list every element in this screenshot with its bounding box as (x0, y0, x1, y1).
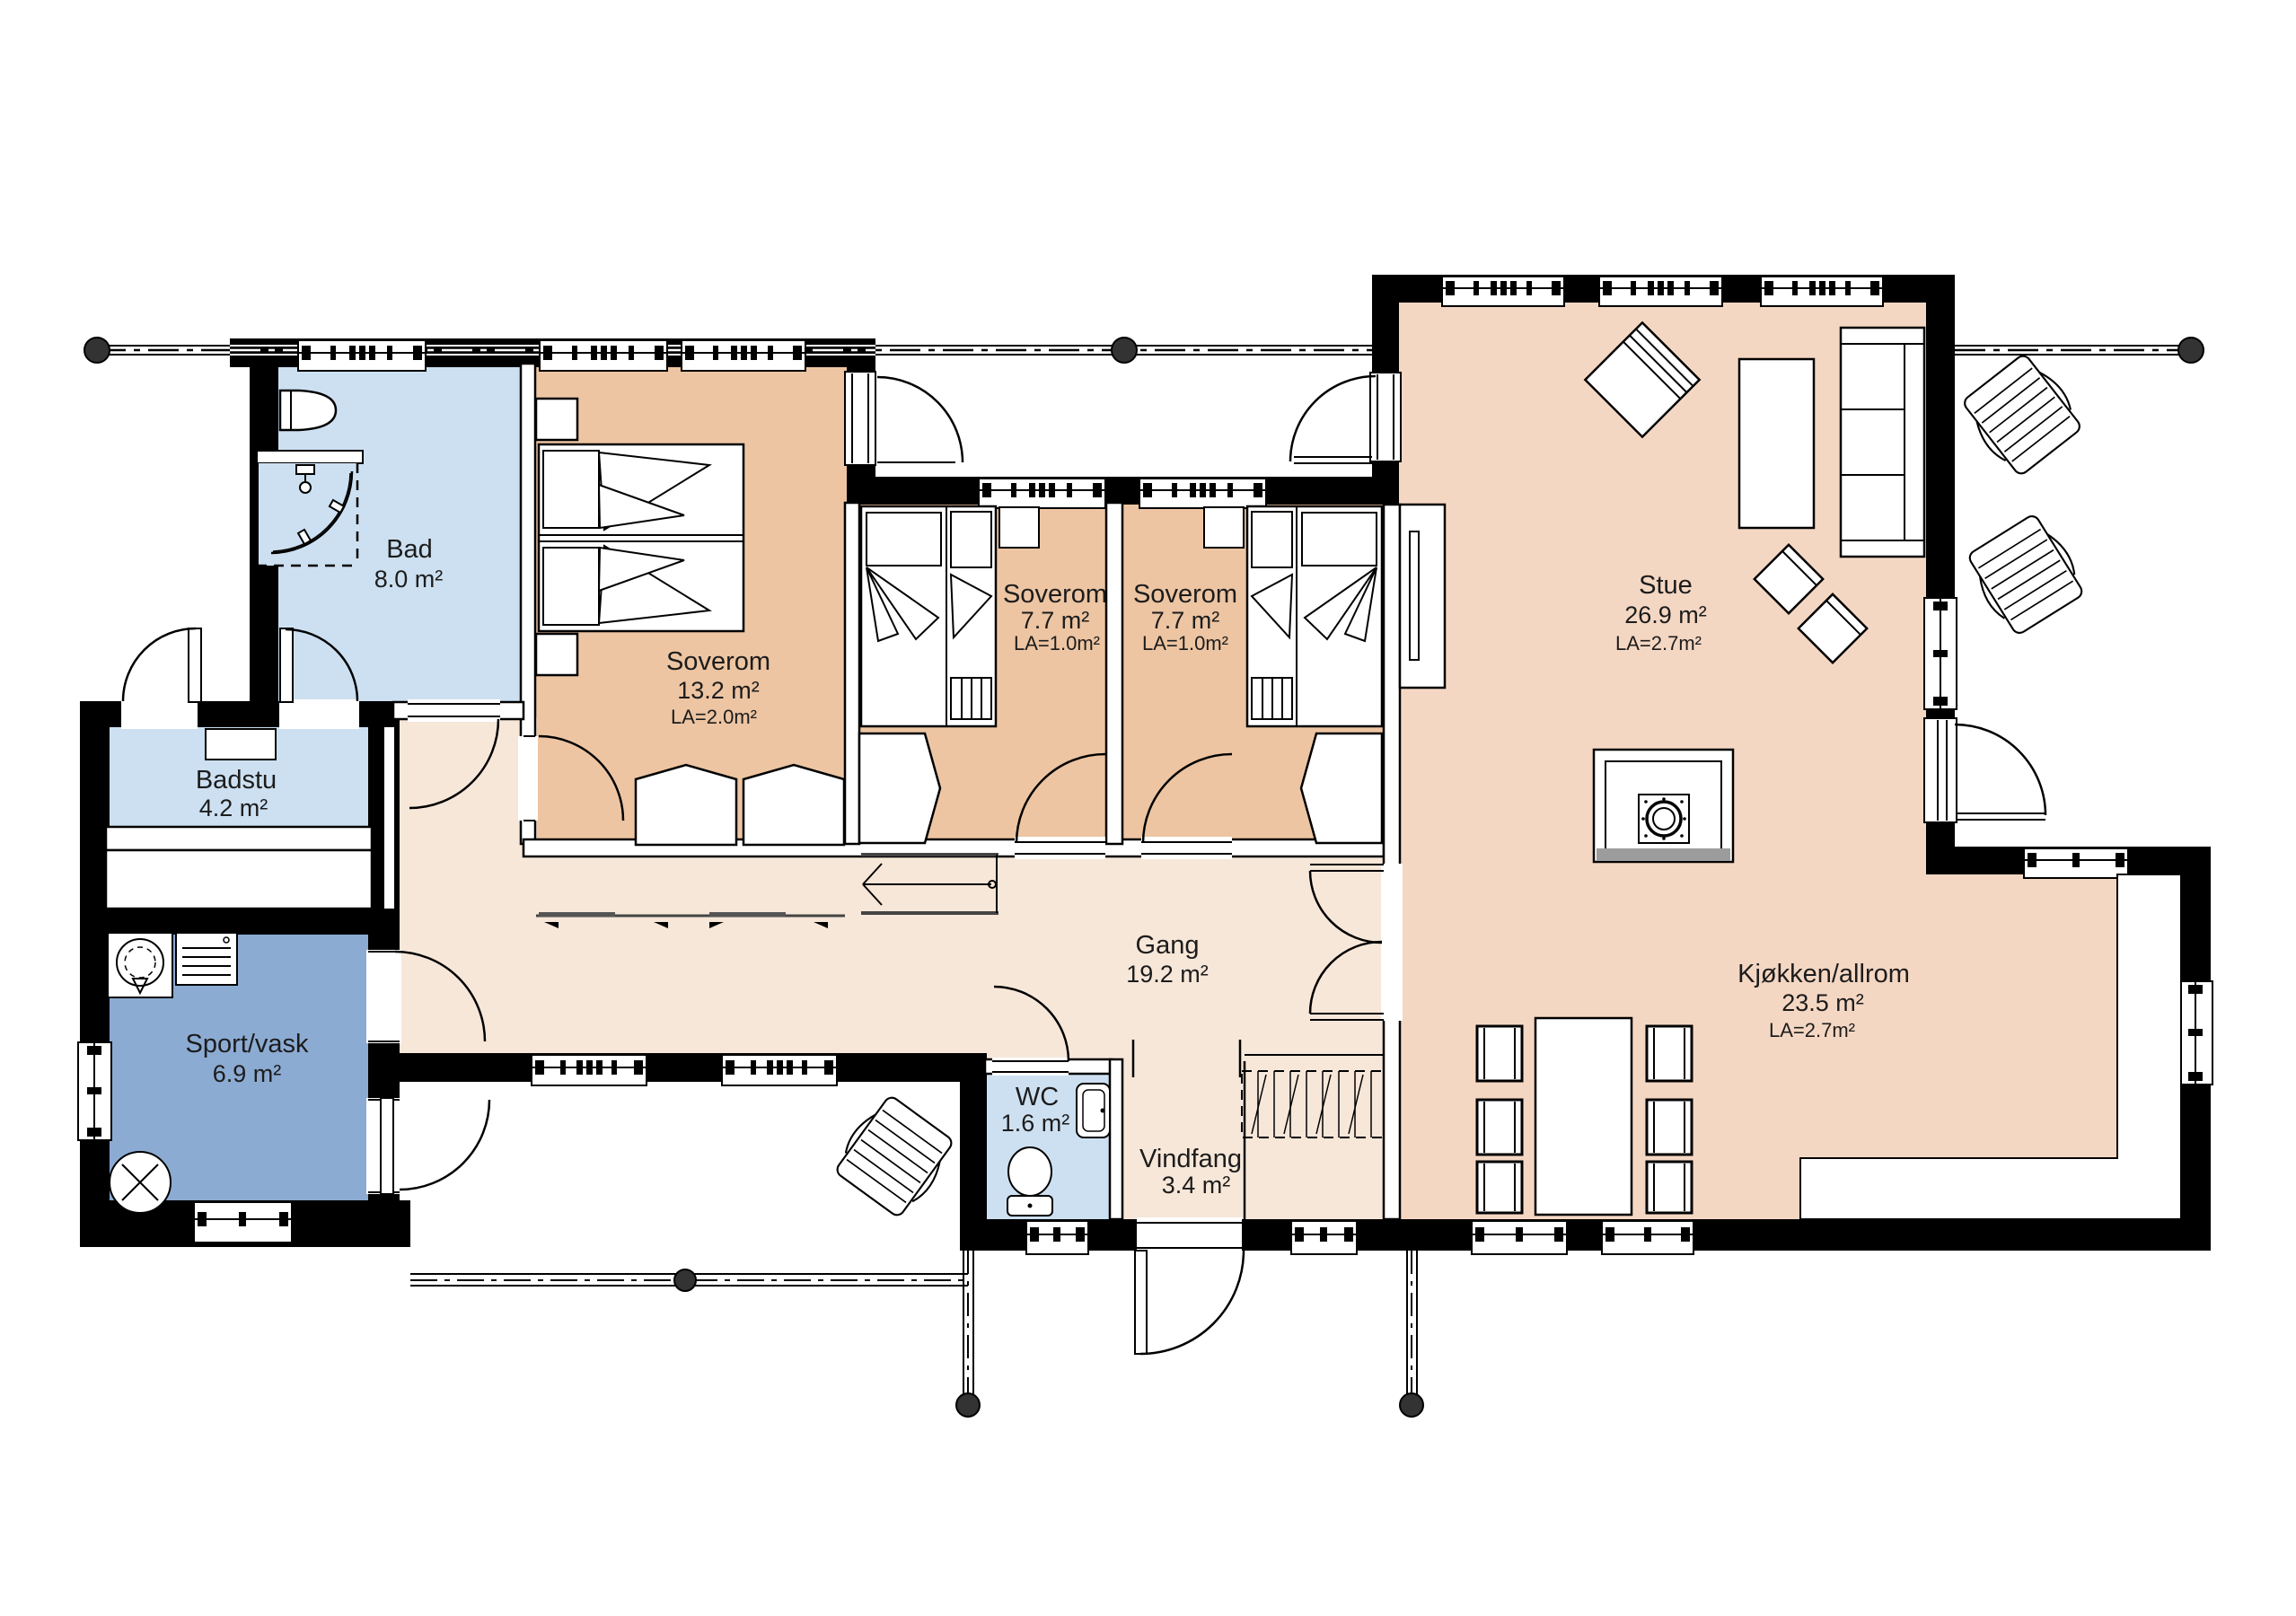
svg-text:Soverom: Soverom (666, 647, 770, 676)
svg-text:6.9 m²: 6.9 m² (213, 1060, 282, 1087)
svg-text:19.2 m²: 19.2 m² (1126, 961, 1209, 988)
svg-text:7.7 m²: 7.7 m² (1021, 607, 1090, 634)
svg-text:LA=2.7m²: LA=2.7m² (1615, 632, 1702, 654)
svg-text:Badstu: Badstu (196, 766, 277, 795)
svg-text:13.2 m²: 13.2 m² (677, 677, 760, 704)
svg-text:3.4 m²: 3.4 m² (1162, 1172, 1231, 1199)
svg-text:8.0 m²: 8.0 m² (374, 566, 444, 593)
svg-text:Vindfang: Vindfang (1139, 1145, 1242, 1173)
svg-text:Kjøkken/allrom: Kjøkken/allrom (1737, 960, 1910, 988)
svg-text:Sport/vask: Sport/vask (186, 1030, 309, 1058)
svg-text:LA=2.7m²: LA=2.7m² (1769, 1019, 1855, 1041)
svg-text:Bad: Bad (386, 535, 433, 564)
svg-text:WC: WC (1016, 1083, 1059, 1111)
svg-text:LA=2.0m²: LA=2.0m² (671, 706, 757, 728)
svg-text:1.6 m²: 1.6 m² (1001, 1110, 1070, 1137)
svg-text:LA=1.0m²: LA=1.0m² (1014, 632, 1100, 654)
svg-text:LA=1.0m²: LA=1.0m² (1142, 632, 1228, 654)
svg-text:7.7 m²: 7.7 m² (1151, 607, 1220, 634)
svg-text:Gang: Gang (1136, 931, 1200, 960)
svg-text:Stue: Stue (1639, 571, 1693, 600)
svg-text:4.2 m²: 4.2 m² (199, 795, 268, 821)
svg-text:26.9 m²: 26.9 m² (1624, 602, 1707, 628)
svg-text:23.5 m²: 23.5 m² (1781, 989, 1864, 1016)
svg-text:Soverom: Soverom (1133, 580, 1237, 609)
svg-text:Soverom: Soverom (1003, 580, 1107, 609)
